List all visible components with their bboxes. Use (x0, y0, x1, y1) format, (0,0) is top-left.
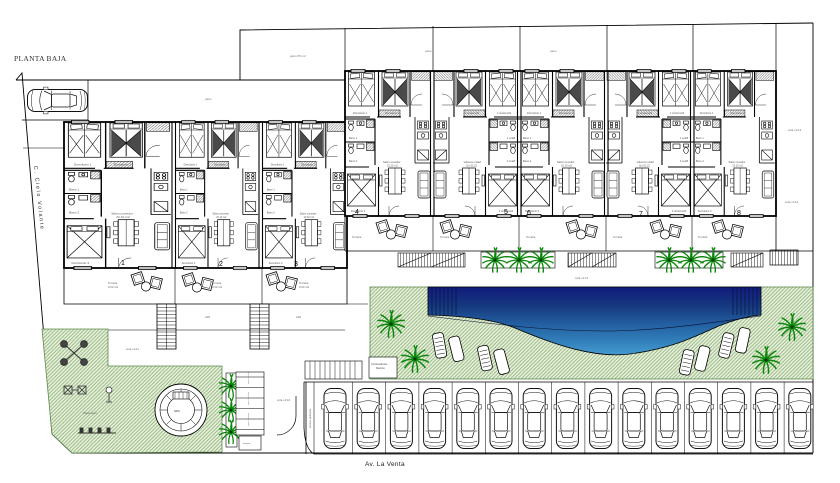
svg-text:5: 5 (504, 209, 508, 216)
svg-text:9.00 m2: 9.00 m2 (108, 285, 119, 289)
svg-text:acceso peatonal: acceso peatonal (308, 409, 312, 428)
svg-text:Terraza: Terraza (698, 235, 708, 239)
svg-text:Terraza: Terraza (352, 235, 362, 239)
svg-text:4: 4 (355, 209, 359, 216)
svg-text:Terraza: Terraza (613, 235, 623, 239)
svg-text:Av. La Venta: Av. La Venta (365, 461, 405, 468)
svg-text:A03: A03 (205, 315, 210, 319)
svg-text:trastero: trastero (243, 442, 251, 445)
svg-text:cota +0.11: cota +0.11 (126, 347, 139, 351)
svg-text:Terraza: Terraza (440, 235, 450, 239)
svg-text:Zona Gym: Zona Gym (83, 411, 98, 415)
svg-text:PLANTA BAJA: PLANTA BAJA (14, 54, 67, 63)
svg-text:aparc. bicicletas: aparc. bicicletas (247, 392, 250, 405)
svg-text:Terraza: Terraza (526, 235, 536, 239)
svg-text:9.00 m2: 9.00 m2 (299, 285, 310, 289)
svg-text:3: 3 (294, 261, 298, 268)
svg-text:1: 1 (121, 260, 125, 267)
svg-text:cota +0.13: cota +0.13 (785, 200, 799, 204)
svg-text:cota +0.10: cota +0.10 (277, 398, 291, 402)
svg-text:A03: A03 (296, 315, 301, 319)
svg-text:Contenedores: Contenedores (371, 362, 388, 366)
svg-text:aparc. bicicletas: aparc. bicicletas (247, 371, 250, 384)
svg-text:aparc. bicicletas: aparc. bicicletas (247, 413, 250, 426)
svg-text:6: 6 (527, 210, 531, 217)
svg-text:patio: patio (205, 97, 212, 101)
svg-text:2: 2 (219, 261, 223, 268)
svg-text:7: 7 (639, 211, 643, 218)
svg-text:patio: patio (425, 49, 432, 53)
svg-text:8: 8 (737, 210, 741, 217)
svg-text:9.00 m2: 9.00 m2 (212, 285, 223, 289)
svg-text:patio: patio (550, 49, 557, 53)
svg-text:Recinto: Recinto (376, 366, 385, 370)
svg-text:cota +0.13: cota +0.13 (788, 128, 802, 132)
svg-text:cota +0.71: cota +0.71 (575, 276, 589, 280)
svg-text:patio 55 m2: patio 55 m2 (290, 54, 306, 58)
svg-text:SPA: SPA (174, 409, 180, 413)
